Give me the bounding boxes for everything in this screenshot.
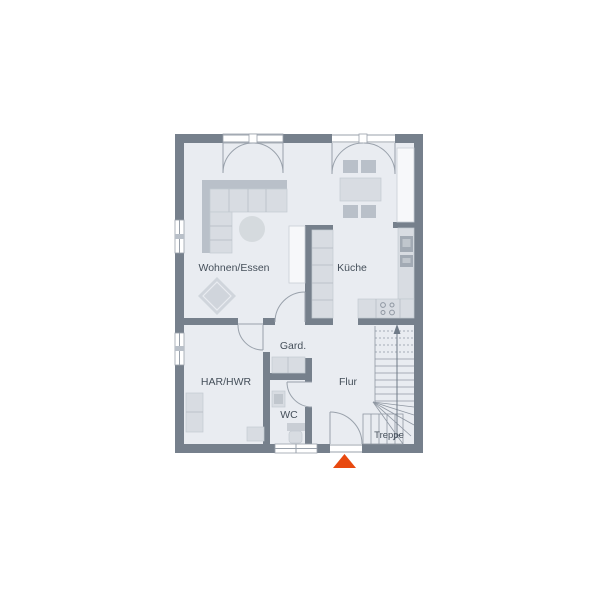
label-treppe: Treppe [374, 430, 404, 441]
label-kueche: Küche [337, 262, 367, 274]
window-living [175, 220, 184, 253]
entrance-arrow-icon [333, 454, 356, 468]
label-wc: WC [280, 409, 298, 421]
label-gard: Gard. [280, 340, 306, 352]
floor-plan-drawing: Wohnen/Essen Küche Gard. HAR/HWR WC Flur… [0, 0, 600, 600]
sideboard [289, 226, 305, 283]
label-flur: Flur [339, 376, 358, 388]
label-har-hwr: HAR/HWR [201, 376, 252, 388]
window-wc [275, 444, 317, 453]
coffee-table [239, 216, 265, 242]
wardrobe [272, 357, 305, 373]
wc-sink [272, 391, 285, 407]
label-wohnen-essen: Wohnen/Essen [198, 262, 269, 274]
divider-shelf [312, 230, 333, 318]
window-har [175, 333, 184, 365]
floor-plan-canvas: Wohnen/Essen Küche Gard. HAR/HWR WC Flur… [0, 0, 600, 600]
